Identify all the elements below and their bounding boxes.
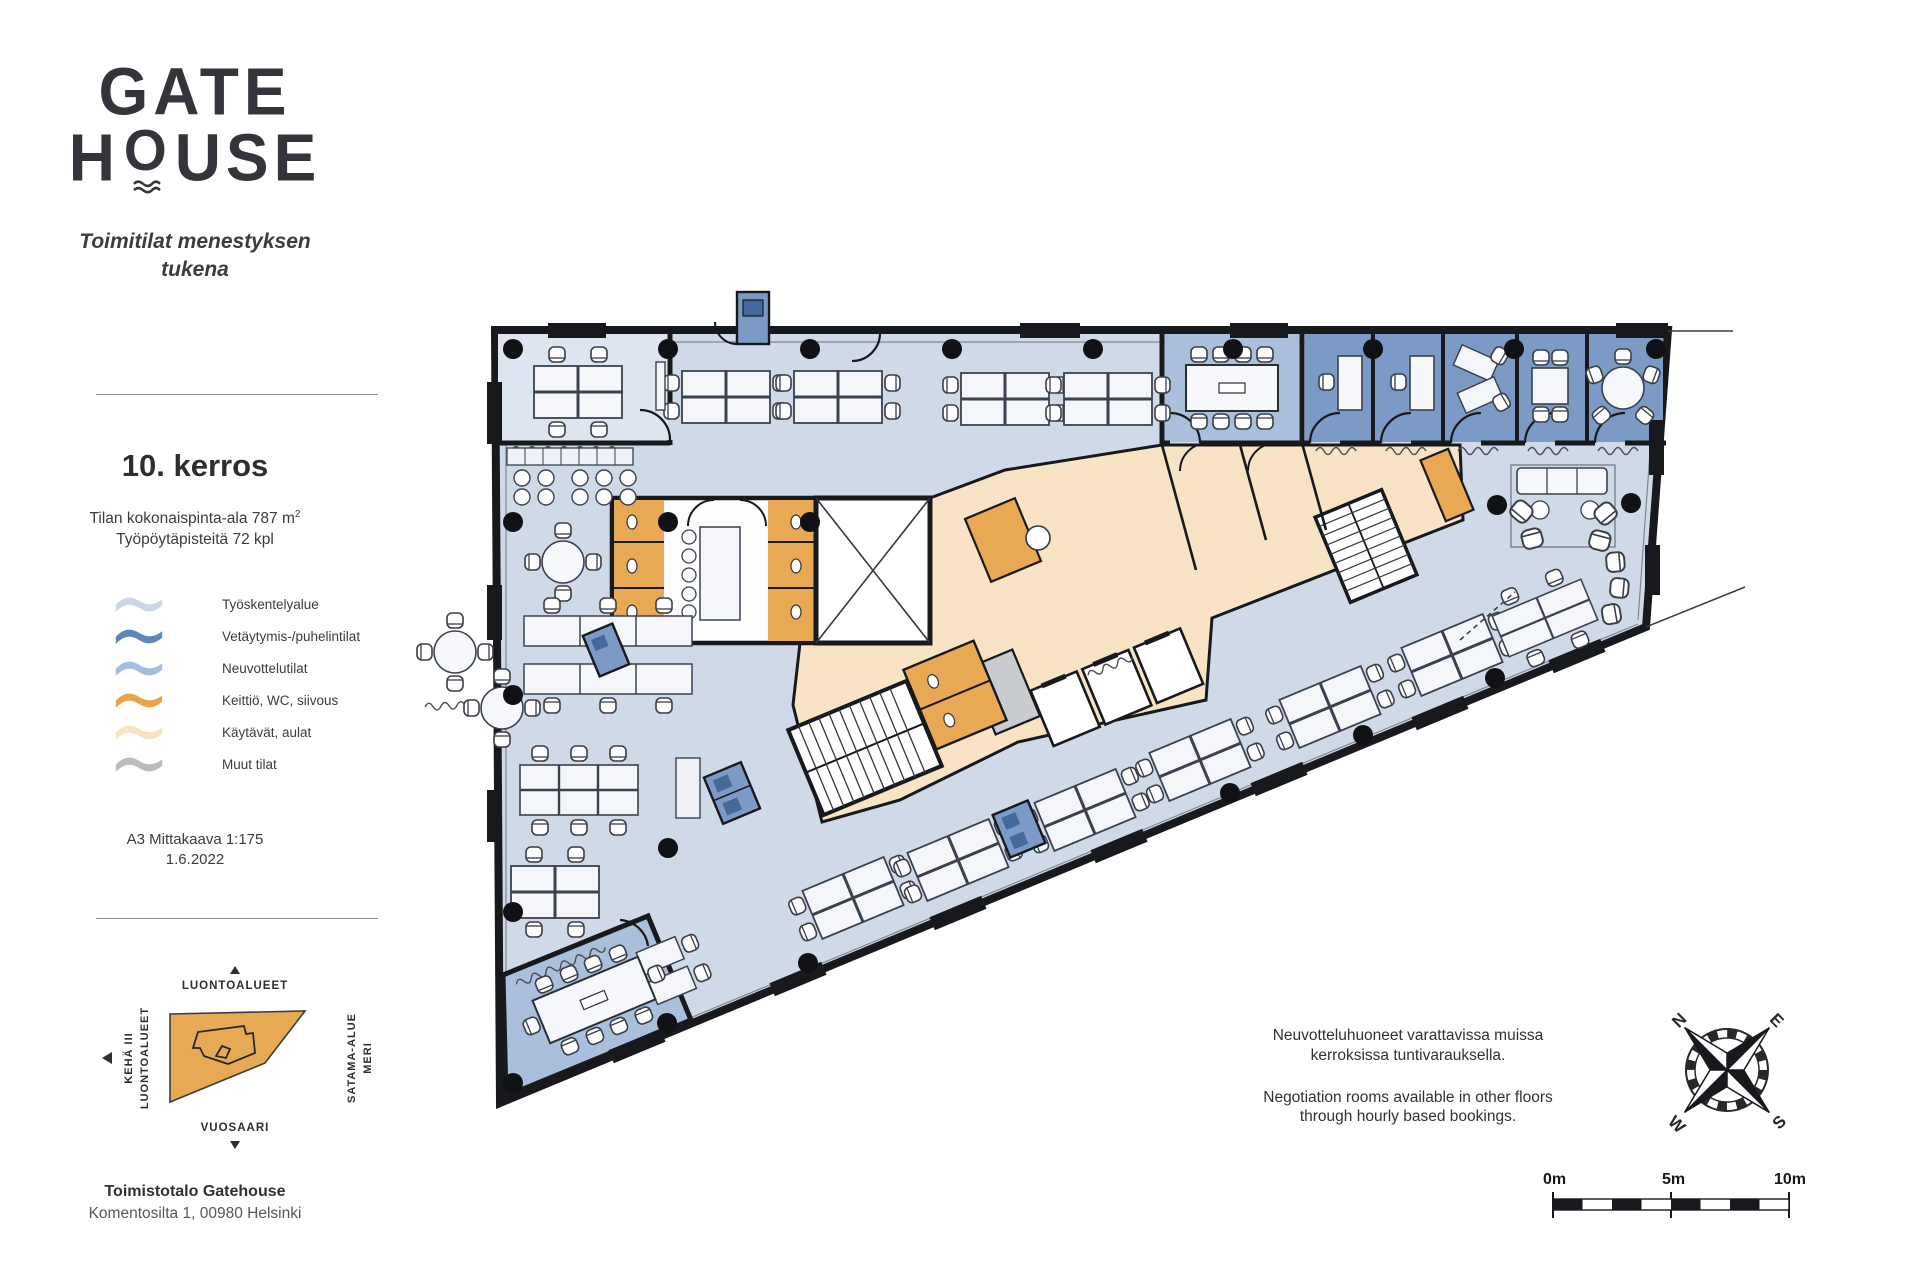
scale-10: 10m [1774,1171,1806,1188]
toilet-icon [791,559,801,573]
desk-cluster [664,371,788,423]
reference-line [1646,587,1745,627]
toilet-icon [791,515,801,529]
locker-row [507,448,633,465]
desk-cluster [776,371,900,423]
floor-plan [0,0,1920,1280]
booking-note-en: Negotiation rooms available in other flo… [1233,1088,1583,1128]
round-table-chairs [417,613,493,691]
phone-desk [1410,356,1434,410]
armchair [1606,552,1626,573]
booking-note-fi: Neuvotteluhuoneet varattavissa muissa ke… [1233,1026,1583,1066]
phone-desk [1338,356,1362,410]
bench [656,362,665,410]
toilet-icon [791,605,801,619]
round-table [1026,526,1050,550]
armchair [1610,578,1630,599]
scale-0: 0m [1543,1171,1566,1188]
compass-n: N [1668,1009,1690,1031]
compass-s: S [1769,1112,1790,1133]
toilet-icon [627,559,637,573]
high-table [682,527,740,620]
sofa [1517,468,1607,494]
compass-rose-icon: N E S W [1638,985,1818,1160]
scale-bar: 0m 5m 10m [1535,1162,1815,1232]
side-table [1531,501,1549,519]
scale-5: 5m [1662,1171,1685,1188]
armchair [1601,603,1622,625]
booking-note: Neuvotteluhuoneet varattavissa muissa ke… [1233,1026,1583,1127]
desk-cluster [1046,373,1170,425]
compass-w: W [1664,1112,1689,1137]
toilet-icon [627,515,637,529]
